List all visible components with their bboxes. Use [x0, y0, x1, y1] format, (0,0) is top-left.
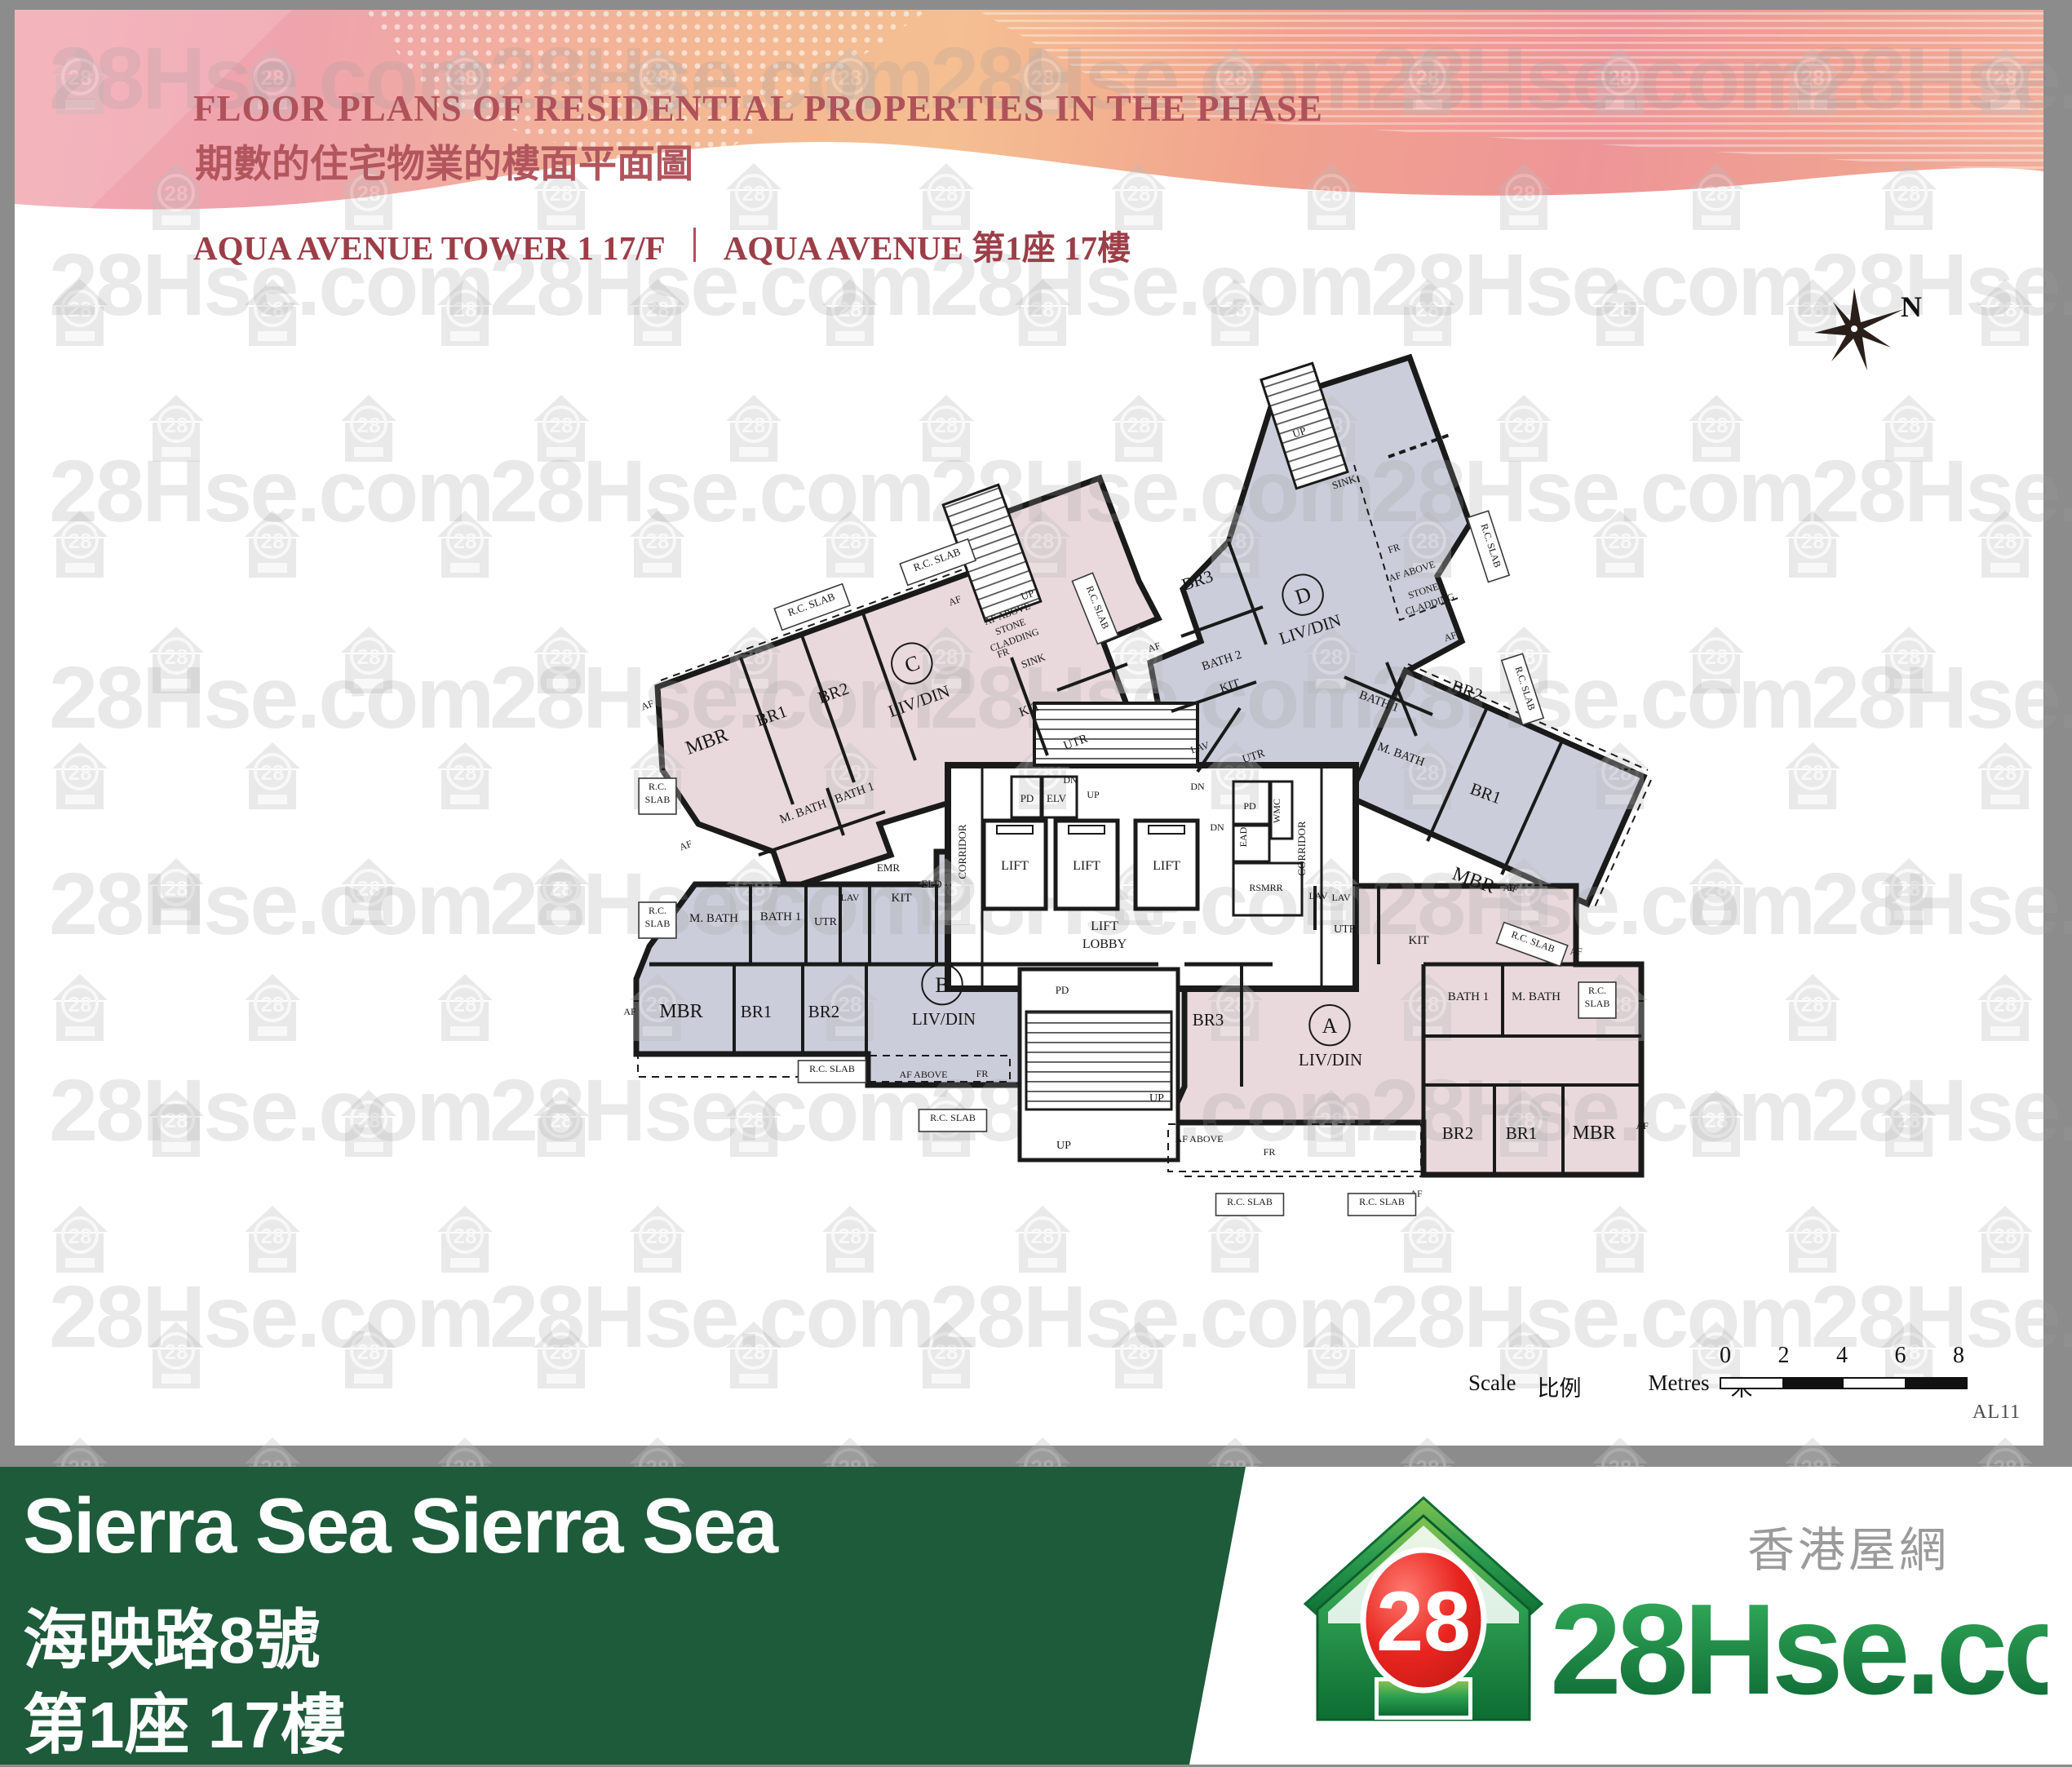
plan-label: LIV/DIN — [1299, 1050, 1362, 1069]
svg-text:28: 28 — [1705, 413, 1729, 437]
scale-segment — [1844, 1379, 1905, 1388]
plan-label: AF — [1503, 882, 1516, 893]
watermark-text: 28Hse.com — [49, 1267, 492, 1366]
watermark-text: 28Hse.com — [1811, 441, 2072, 540]
watermark-house-icon: 28 — [1592, 742, 1648, 809]
svg-text:28: 28 — [1512, 413, 1536, 437]
svg-text:28: 28 — [1801, 992, 1825, 1016]
subtitle-divider — [693, 228, 696, 262]
watermark-house-icon: 28 — [1977, 974, 2033, 1041]
watermark-house-icon: 28 — [1785, 1206, 1840, 1273]
plan-label: BR3 — [1193, 1010, 1224, 1030]
svg-text:UP: UP — [1149, 1092, 1164, 1105]
page: { "header": { "title_en": "FLOOR PLANS O… — [0, 0, 2072, 1765]
plan-label: LIV/DIN — [912, 1009, 976, 1029]
svg-text:28: 28 — [1224, 1224, 1247, 1248]
svg-text:28: 28 — [1897, 413, 1921, 437]
watermark-text: 28Hse.com — [1370, 648, 1813, 746]
plan-label: UP — [1056, 1140, 1071, 1152]
svg-text:28: 28 — [454, 992, 477, 1016]
svg-text:UTR: UTR — [1334, 923, 1357, 936]
svg-text:AF ABOVE: AF ABOVE — [1175, 1133, 1223, 1145]
svg-text:LIFT: LIFT — [1001, 859, 1029, 873]
watermark-house-icon: 28 — [245, 974, 300, 1041]
tower-floor-subtitle: AQUA AVENUE TOWER 1 17/F AQUA AVENUE 第1座… — [193, 220, 1131, 269]
watermark-text: 28Hse.com — [1370, 235, 1813, 334]
scale-segment — [1905, 1379, 1966, 1388]
svg-text:BR2: BR2 — [1442, 1123, 1474, 1143]
page-title-zh: 期數的住宅物業的樓面平面圖 — [195, 132, 693, 188]
watermark-house-icon: 28 — [437, 742, 493, 809]
plan-label: AF — [1636, 1120, 1649, 1131]
subtitle-chinese: AQUA AVENUE 第1座 17樓 — [724, 220, 1131, 269]
svg-text:28: 28 — [550, 413, 573, 437]
plan-label: BR1 — [741, 1002, 773, 1021]
site-logo: 28 28Hse.com — [1297, 1483, 2048, 1752]
watermark-house-icon: 28 — [245, 1206, 300, 1273]
plan-label: AF — [1569, 945, 1583, 957]
svg-text:28: 28 — [935, 413, 959, 437]
svg-text:28: 28 — [165, 413, 188, 437]
svg-text:UP: UP — [1087, 789, 1100, 800]
watermark-house-icon: 28 — [52, 1206, 108, 1273]
plan-label: PD — [1056, 984, 1069, 996]
svg-text:28: 28 — [1031, 1224, 1055, 1248]
plan-label: R.C. SLAB — [1216, 1193, 1284, 1216]
plan-label: FR — [976, 1068, 989, 1079]
svg-text:LIFT: LIFT — [1153, 859, 1180, 873]
svg-text:PD: PD — [1056, 984, 1069, 996]
svg-text:BR2: BR2 — [808, 1002, 840, 1021]
scale-bar-segments — [1720, 1377, 1968, 1389]
plan-label: KIT — [1409, 934, 1429, 947]
plan-label: LIFT — [1001, 859, 1029, 873]
svg-text:ELD: ELD — [921, 878, 941, 890]
svg-text:AF ABOVE: AF ABOVE — [899, 1069, 947, 1080]
svg-text:DN: DN — [1210, 821, 1224, 833]
svg-text:28: 28 — [839, 1224, 862, 1248]
plan-label: LAV — [840, 892, 859, 903]
svg-text:MBR: MBR — [659, 1001, 702, 1022]
svg-text:FR: FR — [1264, 1146, 1276, 1158]
svg-text:R.C. SLAB: R.C. SLAB — [1359, 1196, 1405, 1207]
svg-text:B: B — [935, 973, 949, 997]
svg-text:EAD: EAD — [1237, 826, 1249, 847]
plan-label: MBR — [659, 1001, 702, 1022]
svg-text:BR3: BR3 — [1193, 1010, 1224, 1030]
svg-text:LIV/DIN: LIV/DIN — [1299, 1050, 1362, 1069]
scale-segment — [1721, 1379, 1782, 1388]
svg-text:28: 28 — [1801, 1224, 1825, 1248]
svg-text:28: 28 — [1994, 992, 2017, 1016]
svg-text:LIFT: LIFT — [1091, 919, 1118, 933]
svg-text:28: 28 — [1897, 181, 1921, 206]
svg-text:LAV: LAV — [1331, 892, 1350, 903]
plan-label: LAV — [1308, 890, 1327, 901]
plan-label: LAV — [1331, 892, 1350, 903]
plan-label: ELD — [921, 878, 941, 890]
svg-text:28: 28 — [1609, 1224, 1632, 1248]
logo-house-icon: 28 — [1305, 1498, 1542, 1720]
svg-text:LOBBY: LOBBY — [1082, 937, 1127, 951]
plan-label: LOBBY — [1082, 937, 1127, 951]
svg-text:LIV/DIN: LIV/DIN — [912, 1009, 976, 1029]
scale-label-zh: 比例 — [1537, 1371, 1581, 1402]
compass-north-label: N — [1901, 290, 1922, 323]
tower-floor-label: 第1座 17樓 — [23, 1672, 346, 1767]
watermark-text: 28Hse.com — [1370, 29, 1813, 127]
plan-sheet-code: AL11 — [1972, 1402, 2021, 1424]
watermark-text: 28Hse.com — [49, 854, 492, 953]
scale-segment — [1782, 1379, 1844, 1388]
plan-label: EMR — [877, 861, 901, 874]
svg-text:EMR: EMR — [877, 861, 901, 874]
logo-badge: 28 — [1376, 1574, 1471, 1669]
watermark-text: 28Hse.com — [1811, 235, 2072, 334]
scale-tick: 0 — [1720, 1343, 1731, 1369]
svg-text:PD: PD — [1243, 800, 1256, 812]
svg-text:28: 28 — [165, 181, 188, 206]
plan-label: BATH 1 — [1448, 990, 1489, 1003]
watermark-house-icon: 28 — [822, 1206, 878, 1273]
svg-text:M. BATH: M. BATH — [689, 912, 738, 925]
svg-text:BR1: BR1 — [1506, 1123, 1538, 1143]
plan-label: R.C. SLAB — [919, 1109, 987, 1131]
svg-text:28: 28 — [1801, 760, 1825, 785]
plan-label: ELV — [1047, 792, 1067, 804]
svg-text:28: 28 — [742, 413, 766, 437]
plan-label: EAD — [1237, 826, 1249, 847]
compass-hub — [1850, 325, 1858, 333]
watermark-house-icon: 28 — [52, 974, 108, 1041]
svg-text:28: 28 — [1127, 181, 1151, 206]
watermark-house-icon: 28 — [52, 742, 108, 809]
scale-label-en: Scale — [1468, 1371, 1516, 1402]
watermark-text: 28Hse.com — [1811, 29, 2072, 127]
plan-label: PD — [1243, 800, 1256, 812]
watermark-text: 28Hse.com — [1370, 854, 1813, 953]
plan-label: M. BATH — [689, 912, 738, 925]
svg-text:28: 28 — [839, 992, 862, 1016]
watermark-text: 28Hse.com — [49, 648, 492, 746]
plan-label: AF ABOVE — [1175, 1133, 1223, 1145]
watermark-house-icon: 28 — [1496, 163, 1552, 230]
svg-text:28: 28 — [69, 760, 92, 785]
svg-text:28: 28 — [1416, 992, 1440, 1016]
svg-text:AF: AF — [623, 1006, 636, 1017]
svg-text:28: 28 — [1994, 760, 2017, 785]
svg-text:BATH 1: BATH 1 — [760, 910, 801, 923]
scale-tick: 6 — [1895, 1343, 1906, 1369]
plan-label: DN — [1063, 774, 1078, 786]
svg-text:AF: AF — [1569, 945, 1583, 957]
svg-text:28: 28 — [261, 760, 285, 785]
plan-label: WMC — [1271, 799, 1282, 823]
svg-text:28: 28 — [69, 992, 92, 1016]
svg-text:28: 28 — [1609, 760, 1632, 785]
watermark-text: 28Hse.com — [1370, 1061, 1813, 1159]
svg-text:RSMRR: RSMRR — [1249, 882, 1282, 893]
plan-label: AF ABOVE — [899, 1069, 947, 1080]
svg-text:DN: DN — [1190, 781, 1205, 792]
svg-text:BR1: BR1 — [741, 1002, 773, 1021]
project-address: 海映路8號 — [23, 1588, 321, 1682]
watermark-house-icon: 28 — [630, 1206, 685, 1273]
watermark-house-icon: 28 — [1304, 163, 1359, 230]
plan-label: AF — [678, 838, 694, 853]
svg-text:28: 28 — [454, 760, 477, 785]
svg-text:WMC: WMC — [1271, 799, 1282, 823]
svg-text:PD: PD — [1021, 792, 1034, 804]
scale-tick: 4 — [1836, 1343, 1848, 1369]
scale-tick: 8 — [1953, 1343, 1964, 1369]
svg-text:28: 28 — [1416, 1224, 1440, 1248]
plan-label: LIFT — [1073, 859, 1100, 873]
watermark-house-icon: 28 — [1592, 1206, 1648, 1273]
svg-text:CORRIDOR: CORRIDOR — [956, 824, 968, 879]
scale-bar-labels: Scale 比例 Metres 米 — [1468, 1371, 1752, 1402]
plan-label: KIT — [892, 892, 912, 905]
plan-label: LIFT — [1091, 919, 1118, 933]
watermark-text: 28Hse.com — [489, 854, 932, 953]
svg-text:LAV: LAV — [840, 892, 859, 903]
plan-label: UTR — [814, 916, 838, 928]
svg-text:R.C. SLAB: R.C. SLAB — [1227, 1196, 1273, 1207]
project-name: Sierra Sea Sierra Sea — [23, 1481, 777, 1571]
svg-text:MBR: MBR — [1572, 1123, 1615, 1144]
watermark-text: 28Hse.com — [1811, 1061, 2072, 1159]
svg-text:28: 28 — [69, 1224, 92, 1248]
watermark-text: 28Hse.com — [49, 1061, 492, 1159]
plan-label: UP — [1149, 1092, 1164, 1105]
watermark-text: 28Hse.com — [489, 1267, 932, 1366]
svg-text:28: 28 — [1994, 1224, 2017, 1248]
svg-text:28: 28 — [454, 1224, 477, 1248]
svg-text:R.C. SLAB: R.C. SLAB — [930, 1112, 976, 1123]
plan-label: DN — [1210, 821, 1224, 833]
plan-label: R.C. SLAB — [799, 1061, 866, 1083]
watermark-house-icon: 28 — [1977, 1206, 2033, 1273]
svg-text:FR: FR — [976, 1068, 989, 1079]
plan-label: R.C.SLAB — [639, 902, 676, 938]
plan-label: RSMRR — [1249, 882, 1282, 893]
plan-label: DN — [1190, 781, 1205, 792]
plan-label: BR2 — [808, 1002, 840, 1021]
plan-label: FR — [1264, 1146, 1276, 1158]
plan-label: UP — [1087, 789, 1100, 800]
watermark-house-icon: 28 — [1881, 163, 1937, 230]
subtitle-english: AQUA AVENUE TOWER 1 17/F — [193, 228, 666, 268]
watermark-house-icon: 28 — [437, 974, 493, 1041]
plan-label: AF — [623, 1006, 636, 1017]
footer-banner: Sierra Sea Sierra Sea 海映路8號 第1座 17樓 — [0, 1467, 1248, 1765]
svg-text:AF: AF — [1636, 1120, 1649, 1131]
plan-label: R.C.SLAB — [639, 778, 676, 814]
plan-label: LIFT — [1153, 859, 1180, 873]
svg-text:LAV: LAV — [1308, 890, 1327, 901]
watermark-house-icon: 28 — [1977, 742, 2033, 809]
svg-text:28: 28 — [1320, 181, 1344, 206]
watermark-house-icon: 28 — [1785, 974, 1840, 1041]
svg-text:ELV: ELV — [1047, 792, 1067, 804]
watermark-text: 28Hse.com — [49, 441, 492, 540]
svg-text:28: 28 — [261, 1224, 285, 1248]
svg-text:A: A — [1322, 1014, 1338, 1038]
svg-text:KIT: KIT — [1409, 934, 1429, 947]
plan-label: UTR — [1334, 923, 1357, 936]
svg-text:28: 28 — [261, 992, 285, 1016]
svg-text:R.C. SLAB: R.C. SLAB — [809, 1063, 855, 1074]
watermark-text: 28Hse.com — [930, 1267, 1373, 1366]
watermark-house-icon: 28 — [437, 1206, 493, 1273]
scale-tick: 2 — [1778, 1343, 1790, 1369]
plan-label: BR1 — [1506, 1123, 1538, 1143]
scale-tick-numbers: 02468 — [1720, 1343, 1964, 1369]
svg-text:LIFT: LIFT — [1073, 859, 1100, 873]
plan-label: MBR — [1572, 1123, 1615, 1144]
plan-label: R.C.SLAB — [1578, 982, 1616, 1018]
plan-label: R.C. SLAB — [1348, 1193, 1416, 1216]
svg-text:28: 28 — [742, 181, 766, 206]
scale-bar: Scale 比例 Metres 米 02468 — [1705, 1336, 2015, 1402]
plan-label: CORRIDOR — [956, 824, 968, 879]
svg-text:28: 28 — [1512, 181, 1536, 206]
plan-label: BR2 — [1442, 1123, 1474, 1143]
watermark-text: 28Hse.com — [489, 441, 932, 540]
svg-text:CORRIDOR: CORRIDOR — [1295, 821, 1308, 876]
plan-label: M. BATH — [1512, 990, 1561, 1003]
svg-text:AF: AF — [678, 838, 694, 853]
watermark-house-icon: 28 — [1015, 1206, 1070, 1273]
svg-text:DN: DN — [1063, 774, 1078, 786]
svg-text:28: 28 — [357, 413, 381, 437]
watermark-text: 28Hse.com — [1370, 441, 1813, 540]
watermark-text: 28Hse.com — [1811, 854, 2072, 953]
svg-text:28: 28 — [1127, 413, 1151, 437]
footer: Sierra Sea Sierra Sea 海映路8號 第1座 17樓 香港屋網 — [0, 1467, 2072, 1765]
plan-label: BATH 1 — [760, 910, 801, 923]
page-title: FLOOR PLANS OF RESIDENTIAL PROPERTIES IN… — [193, 87, 1323, 130]
svg-text:28: 28 — [1224, 992, 1247, 1016]
watermark-house-icon: 28 — [1689, 163, 1744, 230]
svg-text:M. BATH: M. BATH — [1512, 990, 1561, 1003]
svg-text:28: 28 — [935, 181, 959, 206]
logo-text: 28Hse.com — [1550, 1578, 2048, 1721]
svg-text:KIT: KIT — [892, 892, 912, 905]
watermark-house-icon: 28 — [245, 742, 300, 809]
plan-label: CORRIDOR — [1295, 821, 1308, 876]
svg-text:UP: UP — [1056, 1140, 1071, 1152]
plan-label: PD — [1021, 792, 1034, 804]
svg-text:28: 28 — [1705, 181, 1729, 206]
svg-text:BATH 1: BATH 1 — [1448, 990, 1489, 1003]
watermark-house-icon: 28 — [1785, 742, 1840, 809]
svg-text:28: 28 — [646, 1224, 670, 1248]
svg-text:UTR: UTR — [814, 916, 838, 928]
metres-label-en: Metres — [1648, 1371, 1709, 1402]
watermark-text: 28Hse.com — [1811, 648, 2072, 746]
svg-text:AF: AF — [1503, 882, 1516, 893]
